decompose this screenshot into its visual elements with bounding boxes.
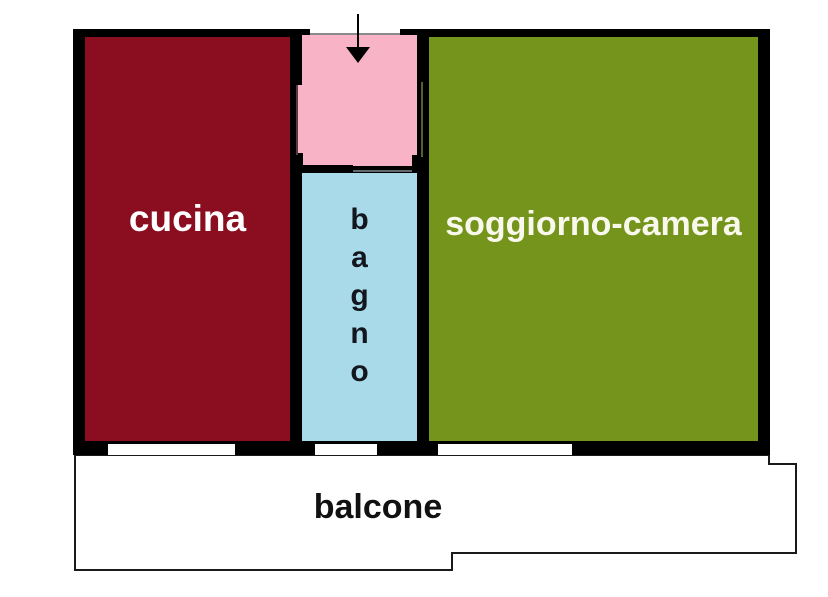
balcone-label: balcone xyxy=(278,488,478,527)
wall-stub-soggiorno-top xyxy=(417,29,429,82)
entrance-arrowhead-icon xyxy=(346,47,370,63)
window-opening-cucina xyxy=(108,444,235,455)
door-line-soggiorno xyxy=(421,82,423,157)
wall-corner-soggiorno xyxy=(412,155,429,173)
floorplan-canvas: cucina b a g n o soggiorno-camera balcon… xyxy=(0,0,828,597)
door-line-bagno xyxy=(353,170,412,172)
bagno-label: b a g n o xyxy=(302,201,417,391)
entrance-arrow-icon xyxy=(357,14,359,48)
window-opening-bagno xyxy=(315,444,377,455)
wall-entrance-bagno xyxy=(290,165,353,173)
wall-stub-cucina-top xyxy=(290,29,302,85)
entrance-threshold-line xyxy=(310,33,400,35)
cucina-label: cucina xyxy=(85,198,290,240)
window-opening-soggiorno xyxy=(438,444,572,455)
door-line-cucina xyxy=(296,85,298,155)
soggiorno-camera-label: soggiorno-camera xyxy=(429,205,758,244)
